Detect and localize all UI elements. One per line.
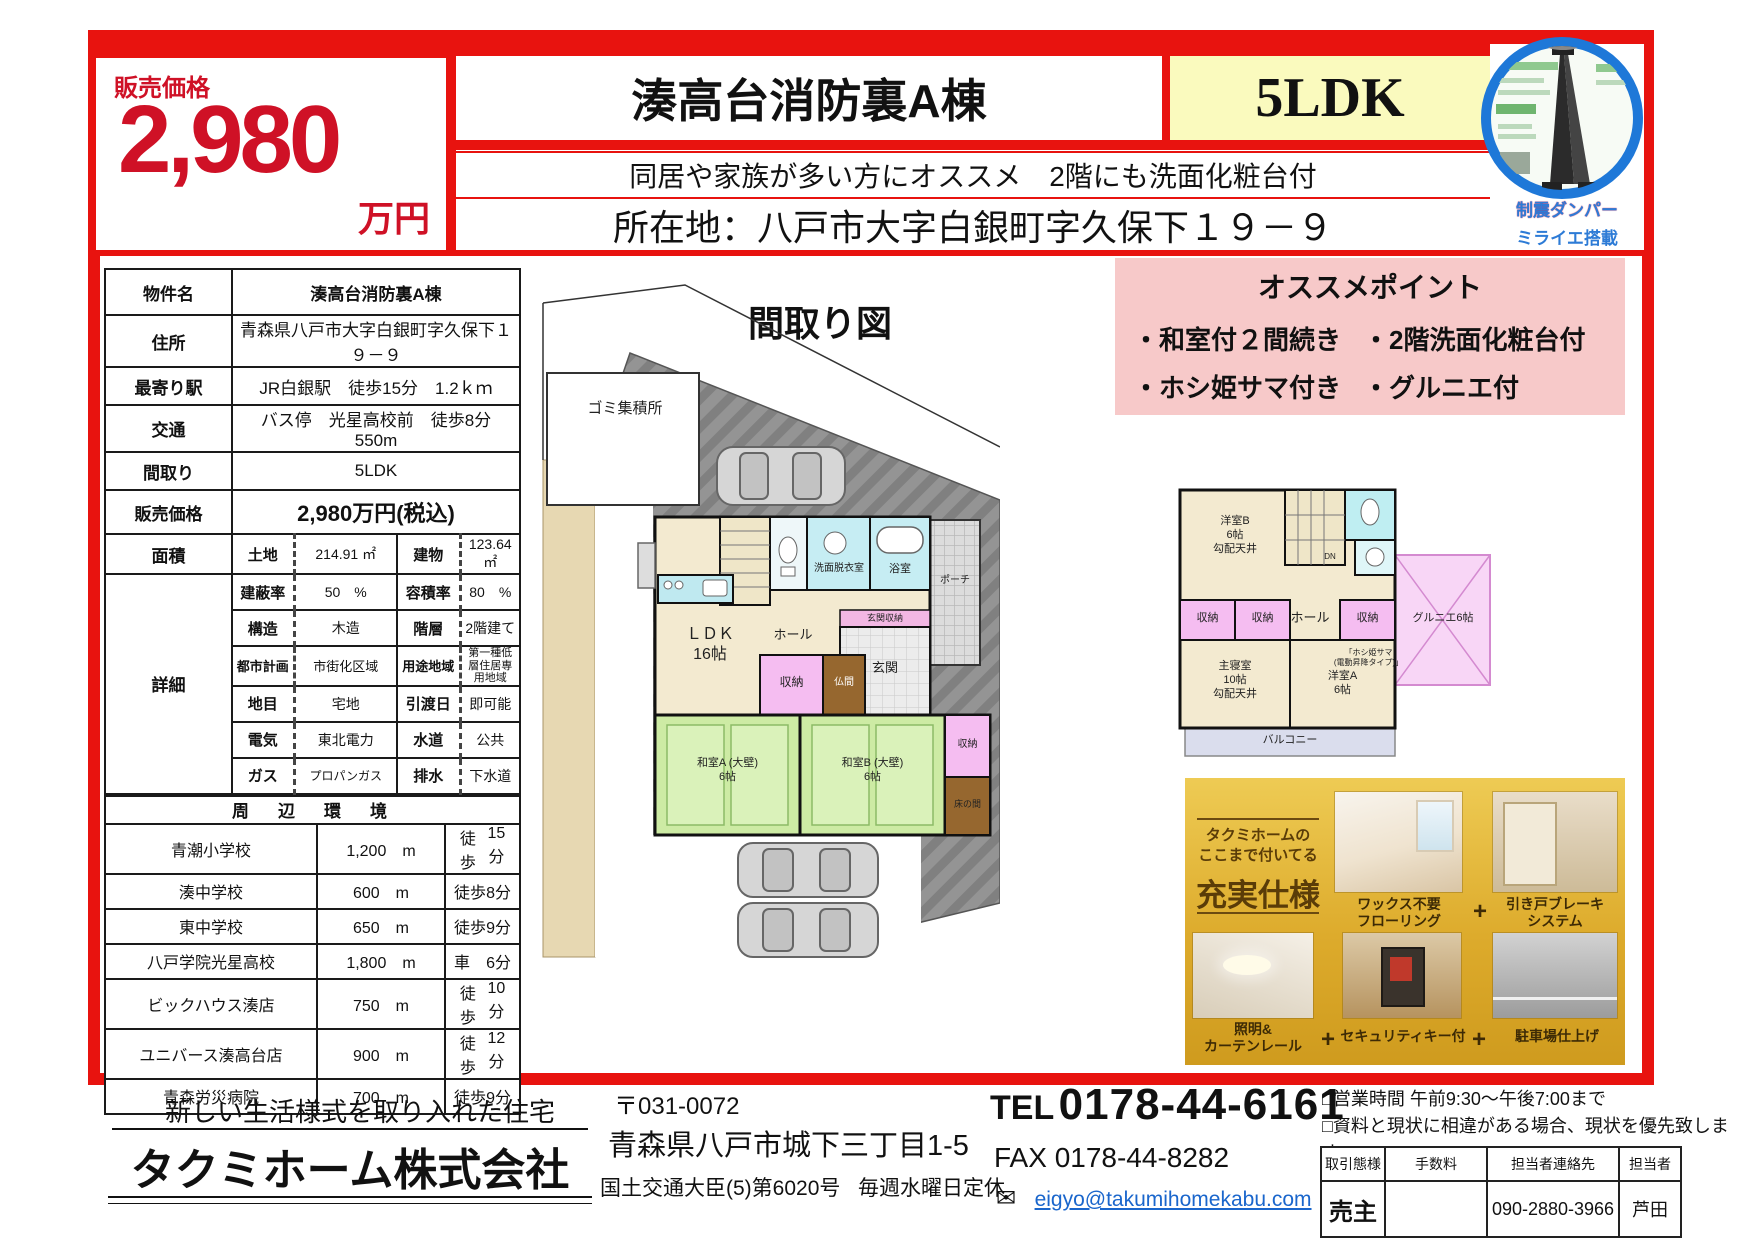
- room-label: 洗面脱衣室: [805, 563, 873, 576]
- cell: 構造: [232, 610, 294, 646]
- license-number: 国土交通大臣(5)第6020号: [600, 1172, 840, 1202]
- cell: ガス: [232, 758, 294, 794]
- damper-badge-icon: [1478, 34, 1646, 202]
- room-label: DN: [1315, 552, 1345, 562]
- car-icon: [717, 447, 845, 505]
- room-label: 主寝室 10帖 勾配天井: [1185, 660, 1285, 701]
- cell: 建物: [397, 534, 460, 574]
- cell: 東北電力: [294, 722, 397, 758]
- cell: 木造: [294, 610, 397, 646]
- cell: 徒歩15分: [445, 824, 520, 874]
- cell: 650 m: [317, 909, 445, 944]
- cell: 取引態様: [1321, 1147, 1385, 1181]
- mode: 徒歩: [454, 1030, 482, 1078]
- room-label: 「ホシ姫サマ (電動昇降タイプ)」: [1326, 648, 1411, 668]
- mode: 車: [454, 949, 470, 973]
- point-item: ・和室付２間続き: [1133, 320, 1341, 357]
- cell: 214.91 ㎡: [294, 534, 397, 574]
- time: 15分: [482, 825, 511, 873]
- table-row: 販売価格 2,980万円(税込): [105, 490, 520, 534]
- cell: 900 m: [317, 1029, 445, 1079]
- feature-label: ワックス不要 フローリング: [1329, 896, 1469, 930]
- ornament-line: [1197, 818, 1319, 820]
- cell: 80 %: [460, 574, 520, 610]
- room-label: 収納: [1235, 612, 1290, 626]
- table-row: 湊中学校 600 m 徒歩8分: [105, 874, 520, 909]
- cell: 090-2880-3966: [1487, 1181, 1619, 1237]
- surroundings-header: 周 辺 環 境: [105, 796, 520, 824]
- table-row: 取引態様 手数料 担当者連絡先 担当者: [1321, 1147, 1681, 1181]
- spec-heading-big: 充実仕様: [1191, 870, 1325, 915]
- room-label: 収納: [946, 739, 989, 752]
- damper-line1: 制震ダンパー: [1492, 196, 1642, 221]
- table-row: 詳細 建蔽率 50 % 容積率 80 %: [105, 574, 520, 610]
- keypad-shape: [1390, 957, 1412, 981]
- cell: [1385, 1181, 1487, 1237]
- point-item: ・ホシ姫サマ付き: [1133, 368, 1341, 405]
- cell: 5LDK: [232, 452, 520, 490]
- point-item: ・2階洗面化粧台付: [1363, 320, 1585, 357]
- cell: 湊中学校: [105, 874, 317, 909]
- window-shape: [1416, 800, 1454, 852]
- room-label: 玄関収納: [840, 613, 930, 624]
- site-plan-drawing: [535, 275, 1000, 960]
- property-spec-section: 物件名 湊高台消防裏A棟 住所 青森県八戸市大字白銀町字久保下１９－９ 最寄り駅…: [104, 268, 521, 1115]
- cell: ビックハウス湊店: [105, 979, 317, 1029]
- room-label: ゴミ集積所: [550, 400, 700, 419]
- car-icon: [738, 903, 878, 957]
- room-label: 浴室: [873, 563, 927, 577]
- footer-tagline: 新しい生活様式を取り入れた住宅: [140, 1092, 580, 1129]
- cell: 土地: [232, 534, 294, 574]
- address-line: 所在地：八戸市大字白銀町字久保下１９－９: [456, 200, 1490, 250]
- room-label: 収納: [1180, 612, 1235, 626]
- room-label: 和室A (大壁) 6帖: [660, 757, 795, 785]
- cell: プロパンガス: [294, 758, 397, 794]
- time: 8分: [486, 879, 511, 903]
- time: 10分: [482, 980, 511, 1028]
- table-row: ユニバース湊高台店 900 m 徒歩12分: [105, 1029, 520, 1079]
- cell: 1,800 m: [317, 944, 445, 979]
- property-title: 湊高台消防裏A棟: [456, 56, 1162, 140]
- table-row: 東中学校 650 m 徒歩9分: [105, 909, 520, 944]
- mode: 徒歩: [454, 980, 482, 1028]
- property-table: 物件名 湊高台消防裏A棟 住所 青森県八戸市大字白銀町字久保下１９－９ 最寄り駅…: [104, 268, 521, 795]
- room-label: ポーチ: [931, 575, 979, 588]
- cell: 芦田: [1619, 1181, 1681, 1237]
- parking-line: [1493, 997, 1617, 1000]
- cell: 地目: [232, 686, 294, 722]
- mode: 徒歩: [454, 825, 482, 873]
- cell: 第一種低層住居専用地域: [460, 646, 520, 686]
- envelope-icon: ✉: [996, 1185, 1016, 1212]
- holiday-note: 毎週水曜日定休: [858, 1172, 1005, 1202]
- point-item: ・グルニエ付: [1363, 368, 1519, 405]
- room-label: 収納: [1340, 612, 1395, 626]
- cell: 1,200 m: [317, 824, 445, 874]
- table-row: 最寄り駅 JR白銀駅 徒歩15分 1.2ｋｍ: [105, 367, 520, 405]
- table-row: ビックハウス湊店 750 m 徒歩10分: [105, 979, 520, 1029]
- cell: 最寄り駅: [105, 367, 232, 405]
- company-address: 青森県八戸市城下三丁目1-5: [608, 1122, 969, 1164]
- cell: バス停 光星高校前 徒歩8分 550m: [232, 405, 520, 452]
- cell: 販売価格: [105, 490, 232, 534]
- spec-heading-small: タクミホームの ここまで付いてる: [1191, 826, 1325, 867]
- room-label: グルニエ6帖: [1398, 612, 1488, 626]
- room-label: ホール: [763, 627, 823, 643]
- cell: 交通: [105, 405, 232, 452]
- postal-code: 〒031-0072: [614, 1086, 739, 1121]
- mode: 徒歩: [454, 879, 486, 903]
- photo-sliding-door: [1493, 792, 1617, 892]
- points-box: オススメポイント ・和室付２間続き ・2階洗面化粧台付 ・ホシ姫サマ付き ・グル…: [1115, 258, 1625, 415]
- table-row: 物件名 湊高台消防裏A棟: [105, 269, 520, 315]
- cell: 2,980万円(税込): [232, 490, 520, 534]
- feature-label: 照明& カーテンレール: [1185, 1021, 1321, 1055]
- cell: 下水道: [460, 758, 520, 794]
- surroundings-table: 周 辺 環 境 青潮小学校 1,200 m 徒歩15分 湊中学校 600 m 徒…: [104, 795, 521, 1115]
- room-label: バルコニー: [1240, 734, 1340, 748]
- cell: 即可能: [460, 686, 520, 722]
- cell: 売主: [1321, 1181, 1385, 1237]
- cell: 詳細: [105, 574, 232, 794]
- cell: 担当者連絡先: [1487, 1147, 1619, 1181]
- cell: 担当者: [1619, 1147, 1681, 1181]
- cell: 都市計画: [232, 646, 294, 686]
- company-name: タクミホーム株式会社: [112, 1134, 588, 1198]
- feature-label: セキュリティキー付: [1335, 1028, 1471, 1045]
- table-row: 八戸学院光星高校 1,800 m 車6分: [105, 944, 520, 979]
- cell: 引渡日: [397, 686, 460, 722]
- business-hours-note: □営業時間 午前9:30～午後7:00まで: [1322, 1086, 1754, 1113]
- room-label: 和室B (大壁) 6帖: [805, 757, 940, 785]
- photo-security-key: [1343, 933, 1461, 1018]
- room-label: ＬＤＫ 16帖: [665, 625, 755, 665]
- cell: 市街化区域: [294, 646, 397, 686]
- table-row: 交通 バス停 光星高校前 徒歩8分 550m: [105, 405, 520, 452]
- damper-line2: ミライエ搭載: [1492, 224, 1642, 249]
- cell: 排水: [397, 758, 460, 794]
- cell: 徒歩9分: [445, 909, 520, 944]
- time: 12分: [482, 1030, 511, 1078]
- cell: 電気: [232, 722, 294, 758]
- cell: 湊高台消防裏A棟: [232, 269, 520, 315]
- cell: 用途地域: [397, 646, 460, 686]
- cell: 八戸学院光星高校: [105, 944, 317, 979]
- cell: 水道: [397, 722, 460, 758]
- email-row: ✉ eigyo@takumihomekabu.com: [996, 1184, 1312, 1213]
- table-row: 売主 090-2880-3966 芦田: [1321, 1181, 1681, 1237]
- door-shape: [1503, 802, 1557, 886]
- time: 6分: [486, 949, 511, 973]
- room-label: 仏間: [823, 677, 865, 690]
- tel-label: TEL: [990, 1089, 1054, 1127]
- cell: 徒歩12分: [445, 1029, 520, 1079]
- cell: 600 m: [317, 874, 445, 909]
- spec-panel: タクミホームの ここまで付いてる 充実仕様 ワックス不要 フローリング + 引き…: [1185, 778, 1625, 1065]
- table-row: 周 辺 環 境: [105, 796, 520, 824]
- tel-number: 0178-44-6161: [1059, 1080, 1345, 1129]
- price-unit: 万円: [358, 190, 430, 242]
- cell: 住所: [105, 315, 232, 367]
- cell: 建蔽率: [232, 574, 294, 610]
- photo-flooring: [1335, 792, 1462, 892]
- feature-label: 引き戸ブレーキ システム: [1485, 896, 1625, 930]
- ornament-line: [1197, 912, 1319, 914]
- photo-lighting: [1193, 933, 1313, 1018]
- cell: 階層: [397, 610, 460, 646]
- cell: 車6分: [445, 944, 520, 979]
- second-floor-plan: 洋室B 6帖 勾配天井 DN ホール 「ホシ姫サマ (電動昇降タイプ)」 収納 …: [1130, 460, 1510, 765]
- cell: JR白銀駅 徒歩15分 1.2ｋｍ: [232, 367, 520, 405]
- table-row: 間取り 5LDK: [105, 452, 520, 490]
- cell: 面積: [105, 534, 232, 574]
- cell: 青潮小学校: [105, 824, 317, 874]
- cell: 宅地: [294, 686, 397, 722]
- price-box: 販売価格 2,980 万円: [96, 58, 446, 250]
- cell: 750 m: [317, 979, 445, 1029]
- deal-table: 取引態様 手数料 担当者連絡先 担当者 売主 090-2880-3966 芦田: [1320, 1146, 1682, 1238]
- cell: 手数料: [1385, 1147, 1487, 1181]
- points-title: オススメポイント: [1115, 266, 1625, 306]
- time: 9分: [486, 914, 511, 938]
- room-label: 玄関: [850, 660, 920, 676]
- table-row: 面積 土地 214.91 ㎡ 建物 123.64 ㎡: [105, 534, 520, 574]
- cell: 123.64 ㎡: [460, 534, 520, 574]
- divider: [112, 1128, 588, 1130]
- table-row: 住所 青森県八戸市大字白銀町字久保下１９－９: [105, 315, 520, 367]
- car-icon: [738, 843, 878, 897]
- cell: 東中学校: [105, 909, 317, 944]
- email-link[interactable]: eigyo@takumihomekabu.com: [1035, 1188, 1312, 1211]
- room-label: 洋室A 6帖: [1295, 670, 1390, 698]
- fax-number: FAX 0178-44-8282: [994, 1142, 1229, 1174]
- photo-parking: [1493, 933, 1617, 1018]
- keybox-shape: [1381, 947, 1425, 1007]
- cell: 公共: [460, 722, 520, 758]
- cell: 青森県八戸市大字白銀町字久保下１９－９: [232, 315, 520, 367]
- cell: ユニバース湊高台店: [105, 1029, 317, 1079]
- feature-label: 駐車場仕上げ: [1495, 1028, 1619, 1045]
- table-row: 青潮小学校 1,200 m 徒歩15分: [105, 824, 520, 874]
- price-value: 2,980: [118, 92, 338, 188]
- room-label: 収納: [760, 675, 823, 690]
- cell: 2階建て: [460, 610, 520, 646]
- room-label: 洋室B 6帖 勾配天井: [1185, 515, 1285, 556]
- cell: 徒歩10分: [445, 979, 520, 1029]
- flyer-page: 販売価格 2,980 万円 湊高台消防裏A棟 5LDK 同居や家族が多い方にオス…: [0, 0, 1754, 1240]
- cell: 50 %: [294, 574, 397, 610]
- cell: 間取り: [105, 452, 232, 490]
- tel-block: TEL 0178-44-6161: [990, 1080, 1345, 1130]
- layout-badge: 5LDK: [1170, 56, 1490, 140]
- cell: 容積率: [397, 574, 460, 610]
- cell: 物件名: [105, 269, 232, 315]
- light-shape: [1223, 955, 1271, 975]
- room-label: 床の間: [945, 799, 990, 810]
- cell: 徒歩8分: [445, 874, 520, 909]
- site-plan: ゴミ集積所 ＬＤＫ 16帖 洗面脱衣室 浴室 ポーチ 玄関収納 玄関 ホール 収…: [535, 275, 1000, 960]
- catch-copy: 同居や家族が多い方にオススメ 2階にも洗面化粧台付: [456, 148, 1490, 202]
- divider: [108, 1196, 592, 1204]
- mode: 徒歩: [454, 914, 486, 938]
- plus-sign: +: [1321, 1026, 1335, 1054]
- plus-sign: +: [1472, 1026, 1486, 1054]
